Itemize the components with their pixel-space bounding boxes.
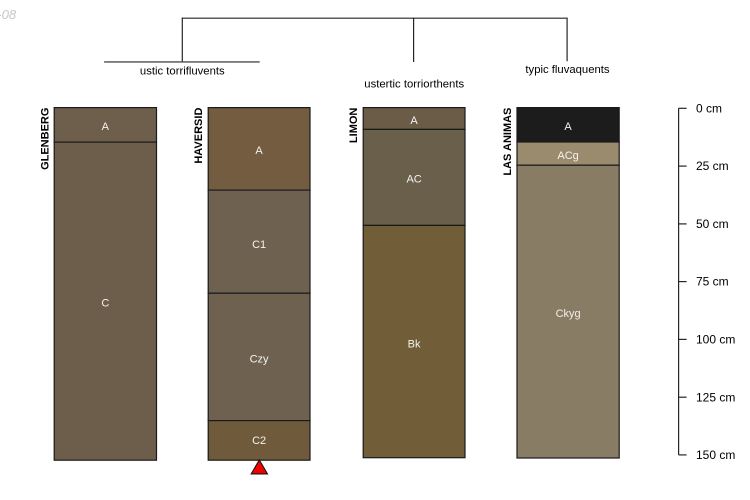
svg-text:HAVERSID: HAVERSID <box>193 108 205 164</box>
svg-text:75 cm: 75 cm <box>696 275 729 289</box>
svg-text:C1: C1 <box>252 239 266 251</box>
svg-text:0 cm: 0 cm <box>696 101 722 115</box>
svg-text:LAS ANIMAS: LAS ANIMAS <box>502 108 514 176</box>
svg-text:Ckyg: Ckyg <box>556 308 581 320</box>
svg-text:ACg: ACg <box>557 150 578 162</box>
svg-text:ustertic torriorthents: ustertic torriorthents <box>364 78 464 90</box>
svg-text:Czy: Czy <box>250 353 269 365</box>
svg-text:C: C <box>101 298 109 310</box>
svg-text:GLENBERG: GLENBERG <box>39 108 51 170</box>
svg-text:AC: AC <box>406 174 421 186</box>
svg-text:100 cm: 100 cm <box>696 333 735 347</box>
svg-text:50 cm: 50 cm <box>696 217 729 231</box>
svg-text:125 cm: 125 cm <box>696 390 735 404</box>
svg-text:A: A <box>410 115 418 127</box>
svg-text:-08: -08 <box>0 7 17 22</box>
svg-text:A: A <box>102 121 110 133</box>
svg-text:Bk: Bk <box>408 338 421 350</box>
svg-text:ustic torrifluvents: ustic torrifluvents <box>140 65 225 77</box>
svg-text:LIMON: LIMON <box>348 108 360 143</box>
svg-text:150 cm: 150 cm <box>696 448 735 462</box>
svg-text:A: A <box>564 121 572 133</box>
svg-text:C2: C2 <box>252 435 266 447</box>
svg-text:25 cm: 25 cm <box>696 159 729 173</box>
svg-text:typic fluvaquents: typic fluvaquents <box>525 64 609 76</box>
svg-text:A: A <box>255 145 263 157</box>
